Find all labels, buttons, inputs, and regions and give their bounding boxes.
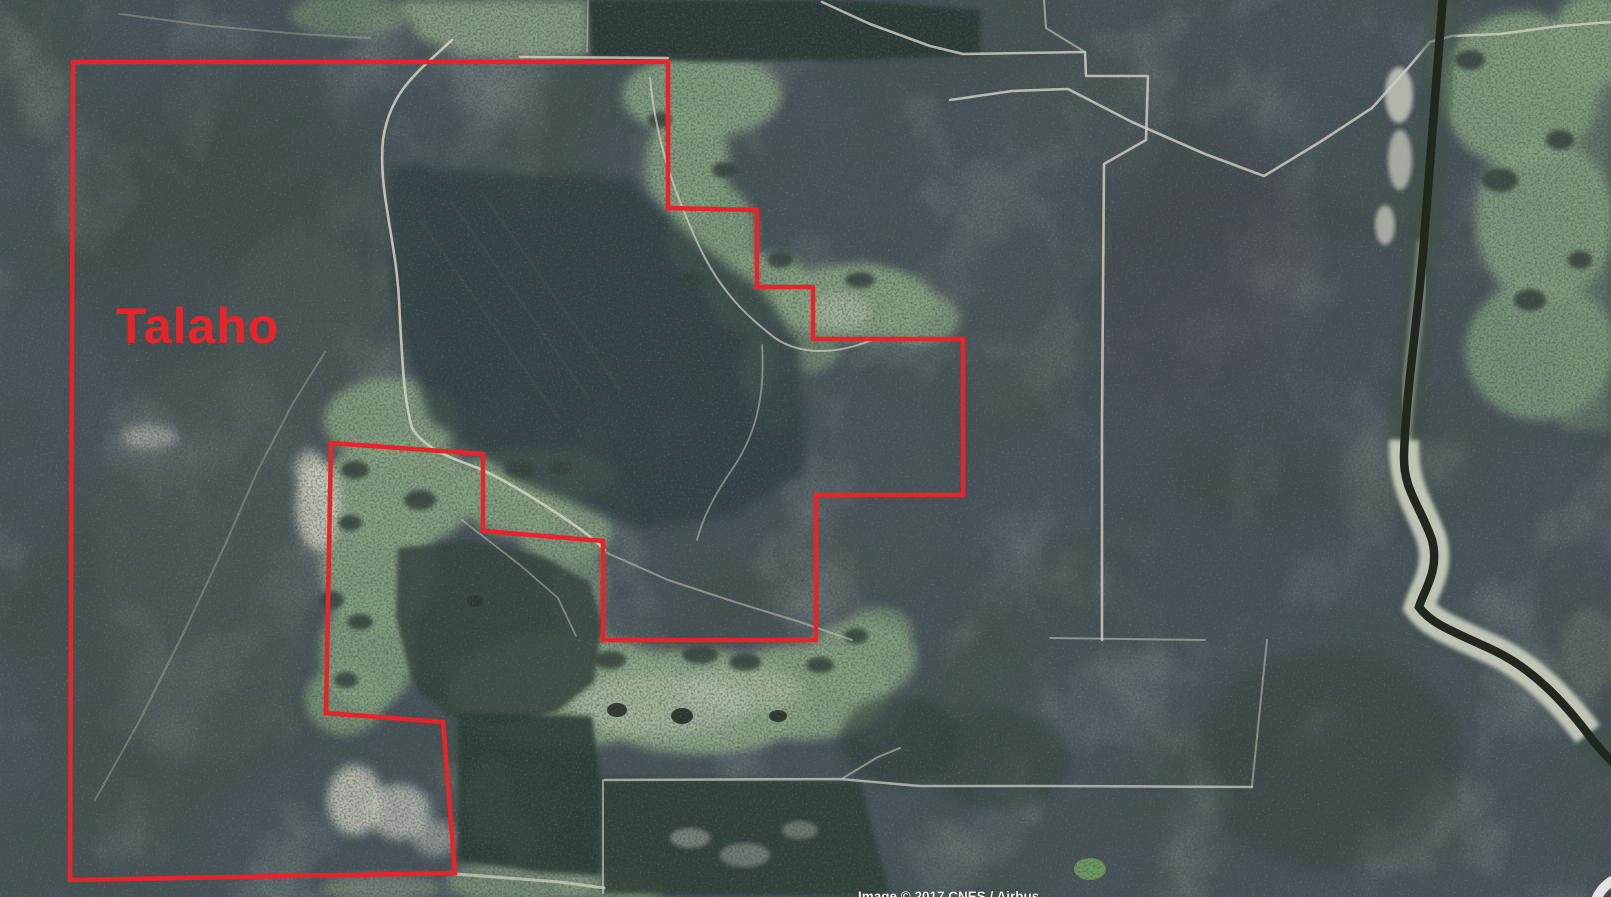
imagery-attribution-text: Image © 2017 CNES / Airbus <box>858 889 1039 897</box>
satellite-map-canvas[interactable]: Talaho Image © 2017 CNES / Airbus <box>0 0 1611 897</box>
texture-grain-layer <box>0 0 1611 897</box>
property-name-label: Talaho <box>116 298 279 354</box>
map-layers: Talaho Image © 2017 CNES / Airbus <box>0 0 1611 897</box>
